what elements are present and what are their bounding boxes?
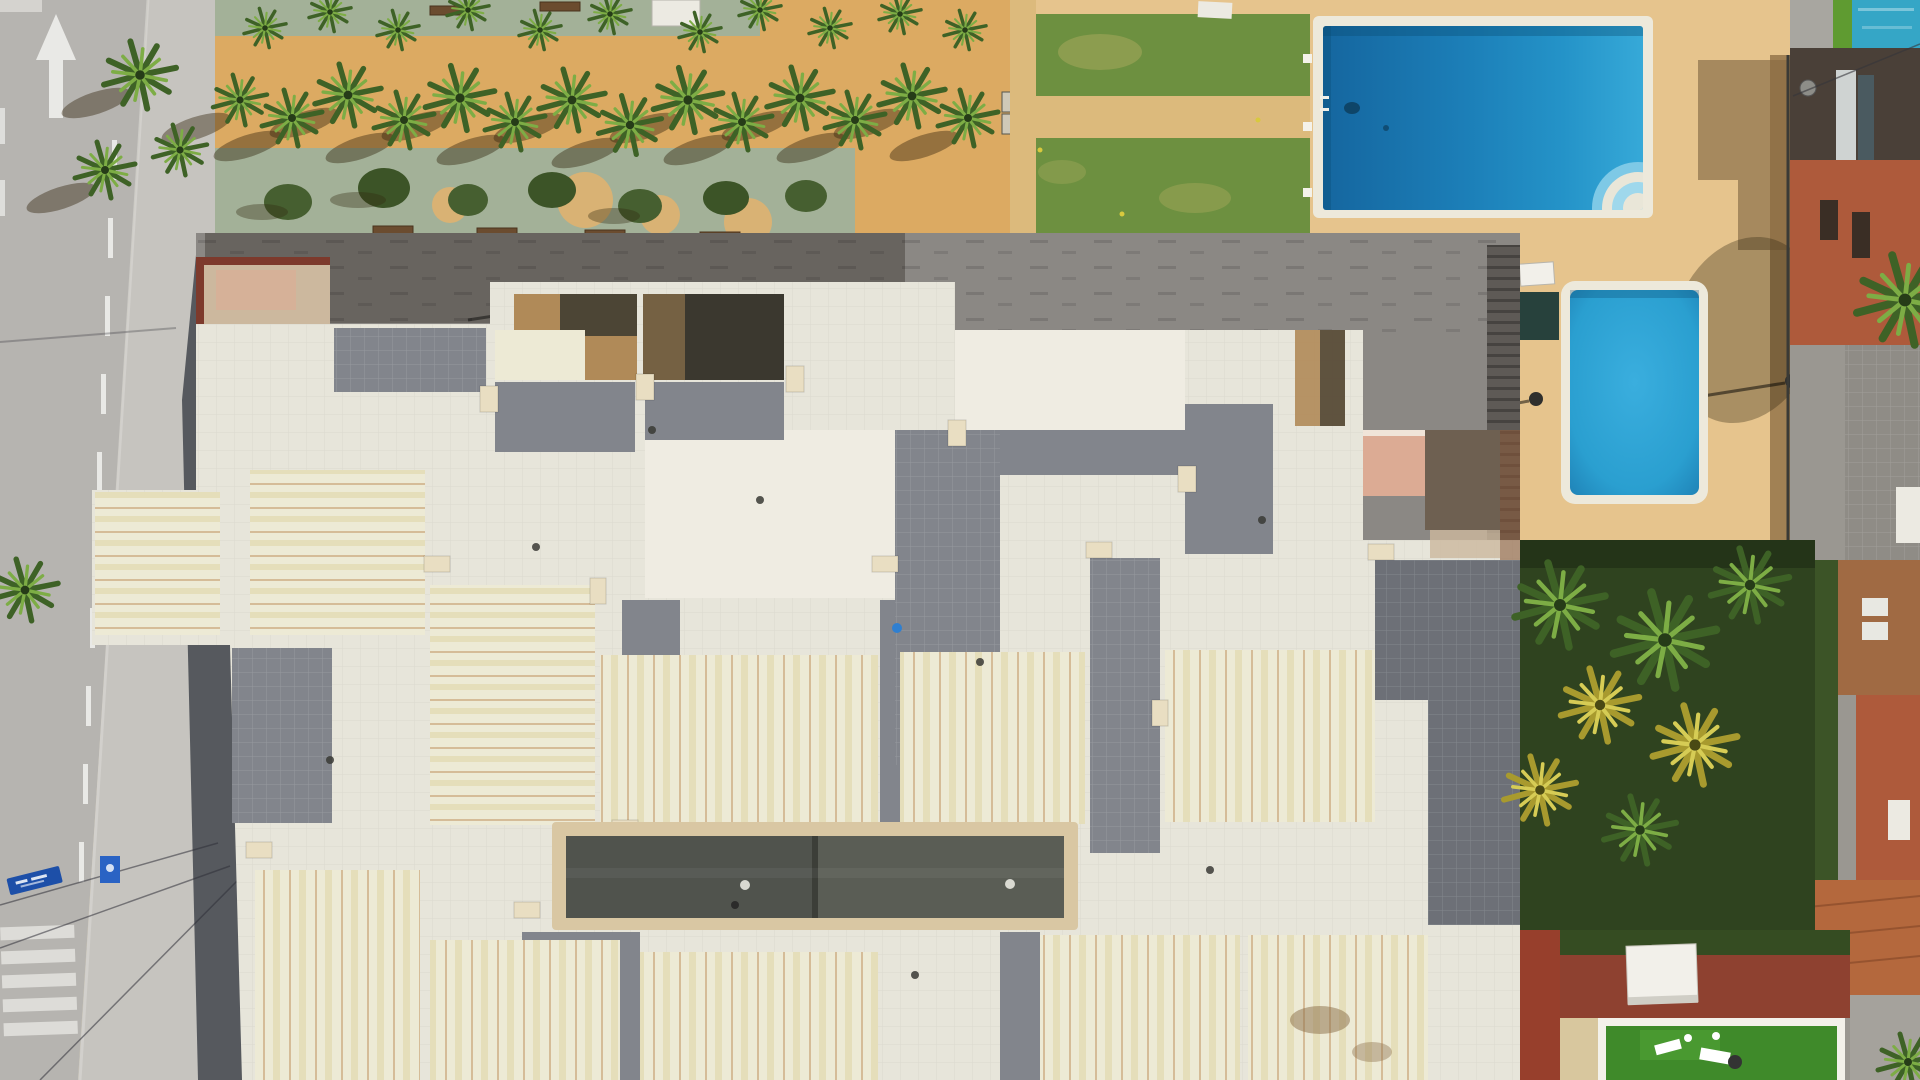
flowers — [1120, 212, 1125, 217]
terrace-table — [1728, 1055, 1742, 1069]
pool-water — [1570, 290, 1699, 495]
ac-unit — [1862, 598, 1888, 616]
worn-grass — [1038, 160, 1086, 184]
rust-stain — [1290, 1006, 1350, 1034]
white-door — [1896, 487, 1920, 543]
pool-cleaner — [1344, 102, 1360, 114]
lawn-side-path — [1010, 0, 1036, 247]
blue-roof-object — [892, 623, 902, 633]
turf-terrace — [1598, 1018, 1845, 1080]
covered-pool — [1852, 0, 1920, 48]
flowers — [1256, 118, 1261, 123]
skylight-vent — [1005, 879, 1015, 889]
worn-grass — [1159, 183, 1231, 213]
sun-lounger-dark — [1519, 292, 1559, 340]
pool-water — [1323, 26, 1643, 210]
red-wall-side — [1520, 930, 1560, 1080]
apartment-roof — [92, 257, 1520, 1080]
skylight-vent — [740, 880, 750, 890]
lawn-top-path — [1010, 0, 1310, 14]
aerial-scene — [0, 0, 1920, 1080]
orange-house — [1856, 695, 1920, 880]
deck-lamp — [1529, 392, 1543, 406]
blue-sign-glyph — [106, 864, 114, 872]
small-pool — [1561, 281, 1708, 504]
skylight — [552, 822, 1078, 930]
penthouse-maroon — [196, 257, 330, 324]
white-canopy — [1626, 944, 1698, 1005]
bright-terrace — [645, 430, 895, 598]
turf-strip — [1833, 0, 1852, 48]
corner-pavement — [0, 0, 42, 12]
lawn — [1010, 0, 1310, 247]
flowers — [1038, 148, 1043, 153]
sunbed — [1198, 1, 1233, 19]
ac-unit — [1862, 622, 1888, 640]
sun-lounger-white — [1519, 262, 1554, 286]
window-frame — [1836, 70, 1856, 165]
rust-stain — [1352, 1042, 1392, 1062]
bright-terrace — [955, 330, 1185, 430]
lawn-cross-path — [1010, 96, 1310, 138]
aerial-photo-canvas — [0, 0, 1920, 1080]
white-door — [1888, 800, 1910, 840]
window-glass — [1858, 75, 1874, 160]
worn-grass — [1058, 34, 1142, 70]
